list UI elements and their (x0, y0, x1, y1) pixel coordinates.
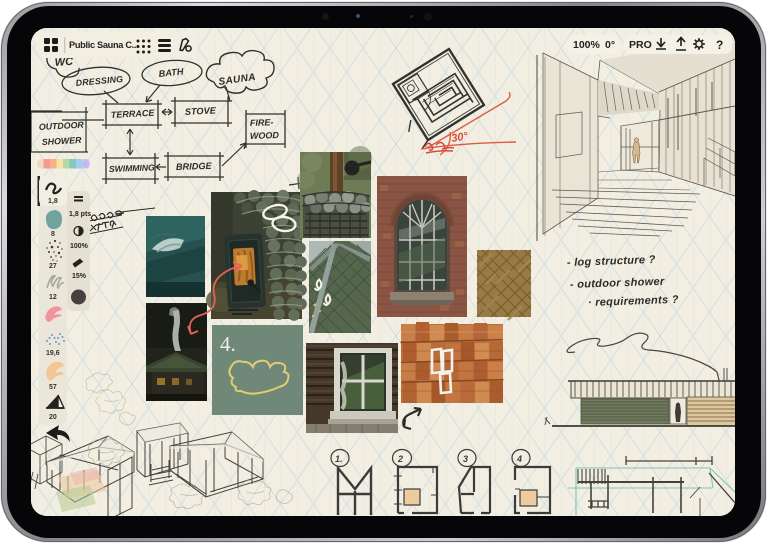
svg-text:8: 8 (51, 231, 55, 238)
svg-text:4: 4 (516, 454, 522, 464)
svg-text:0°: 0° (605, 39, 615, 51)
svg-text:27: 27 (49, 263, 57, 270)
svg-text:2: 2 (397, 454, 403, 464)
svg-text:4.: 4. (220, 332, 236, 356)
svg-text:SHOWER: SHOWER (42, 135, 83, 147)
svg-text:57: 57 (49, 384, 57, 391)
svg-text:100%: 100% (573, 39, 601, 51)
svg-text:1.: 1. (335, 454, 343, 464)
svg-text:PRO: PRO (629, 39, 652, 51)
svg-text:BRIDGE: BRIDGE (176, 161, 213, 172)
svg-text:1,8: 1,8 (48, 198, 58, 205)
svg-text:WOOD: WOOD (250, 130, 280, 141)
svg-text:Public Sauna C...: Public Sauna C... (69, 40, 138, 50)
svg-text:FIRE-: FIRE- (250, 117, 274, 128)
svg-text:SWIMMING: SWIMMING (109, 162, 155, 174)
svg-text:100%: 100% (70, 243, 89, 250)
svg-text:20: 20 (49, 414, 57, 421)
svg-text:1,8 pts: 1,8 pts (69, 211, 91, 218)
svg-text:?: ? (716, 38, 723, 52)
svg-text:19,6: 19,6 (46, 350, 60, 357)
svg-text:15%: 15% (72, 273, 87, 280)
svg-text:12: 12 (49, 294, 57, 301)
svg-text:3: 3 (463, 454, 468, 464)
svg-text:STOVE: STOVE (185, 105, 217, 117)
